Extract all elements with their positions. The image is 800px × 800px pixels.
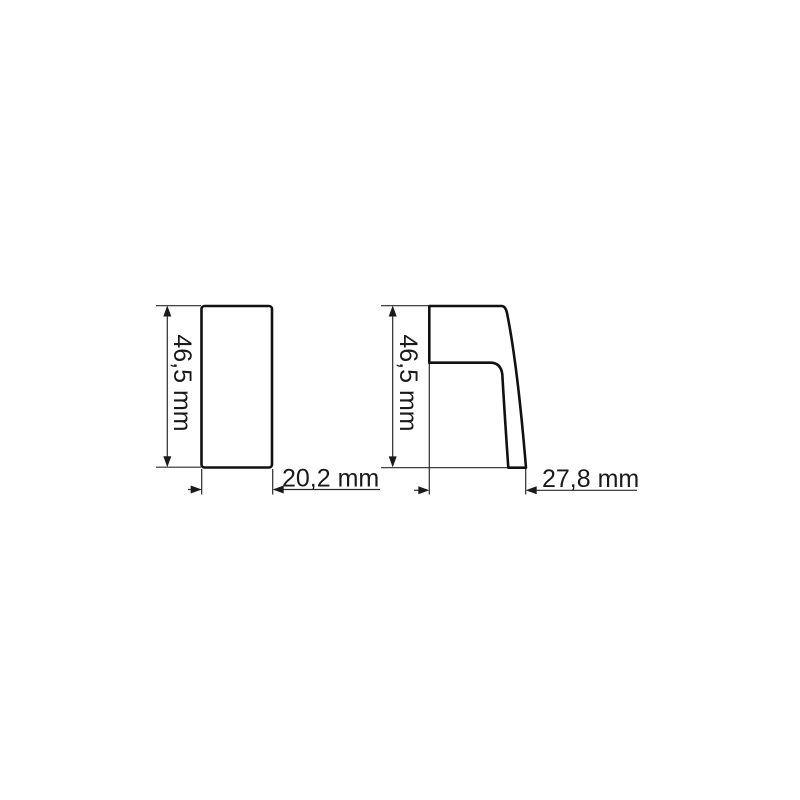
side-view: 46,5 mm 27,8 mm [381, 306, 639, 495]
front-height-dimension: 46,5 mm [156, 306, 201, 468]
dimension-arrowhead-right [418, 486, 429, 494]
dimension-arrowhead-down [389, 456, 397, 467]
front-width-dimension: 20,2 mm [188, 465, 380, 495]
dimension-arrowhead-left [526, 486, 537, 494]
side-view-outline [429, 306, 526, 468]
front-width-label: 20,2 mm [282, 465, 379, 493]
side-height-dimension: 46,5 mm [381, 306, 428, 468]
front-view-outline [202, 306, 273, 468]
side-width-dimension: 27,8 mm [414, 364, 639, 495]
front-height-label: 46,5 mm [168, 334, 196, 431]
side-height-label: 46,5 mm [394, 334, 422, 431]
dimension-drawing-canvas: 46,5 mm 20,2 mm [0, 0, 800, 800]
dimension-arrowhead-right [191, 486, 202, 494]
dimension-arrowhead-down [163, 456, 171, 467]
side-width-label: 27,8 mm [542, 465, 639, 493]
front-view: 46,5 mm 20,2 mm [156, 306, 380, 495]
dimension-arrowhead-up [163, 306, 171, 317]
dimension-arrowhead-up [389, 306, 397, 317]
technical-drawing-page: 46,5 mm 20,2 mm [0, 0, 800, 800]
